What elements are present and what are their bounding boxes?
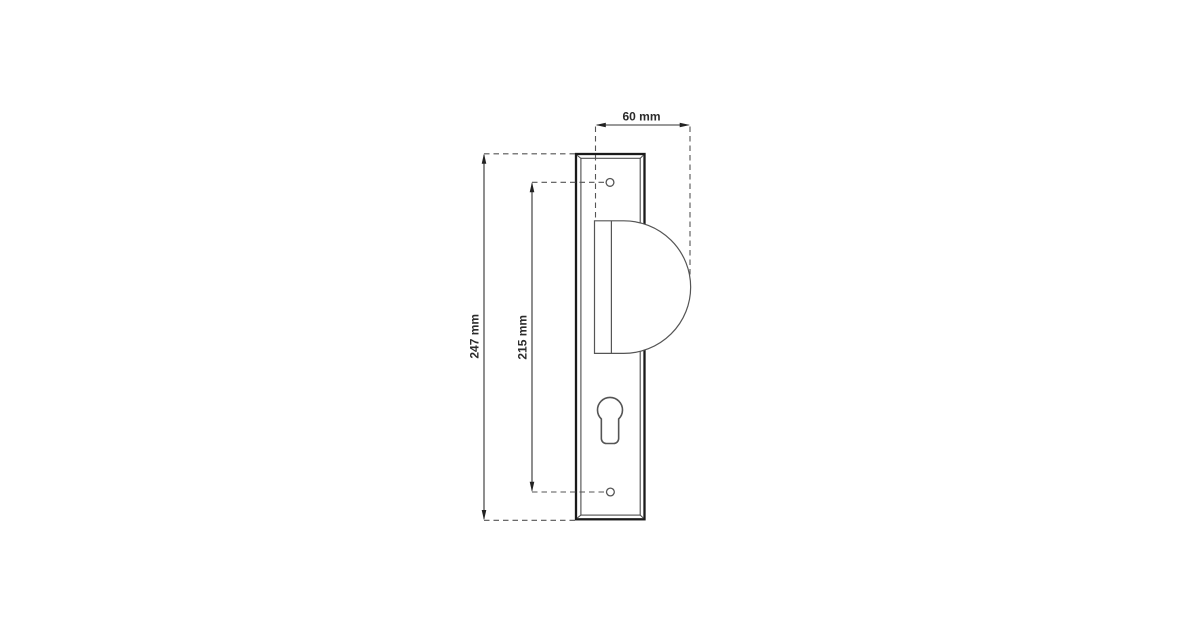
- svg-text:60 mm: 60 mm: [622, 109, 660, 123]
- svg-text:215 mm: 215 mm: [516, 315, 530, 360]
- svg-text:247 mm: 247 mm: [468, 314, 482, 359]
